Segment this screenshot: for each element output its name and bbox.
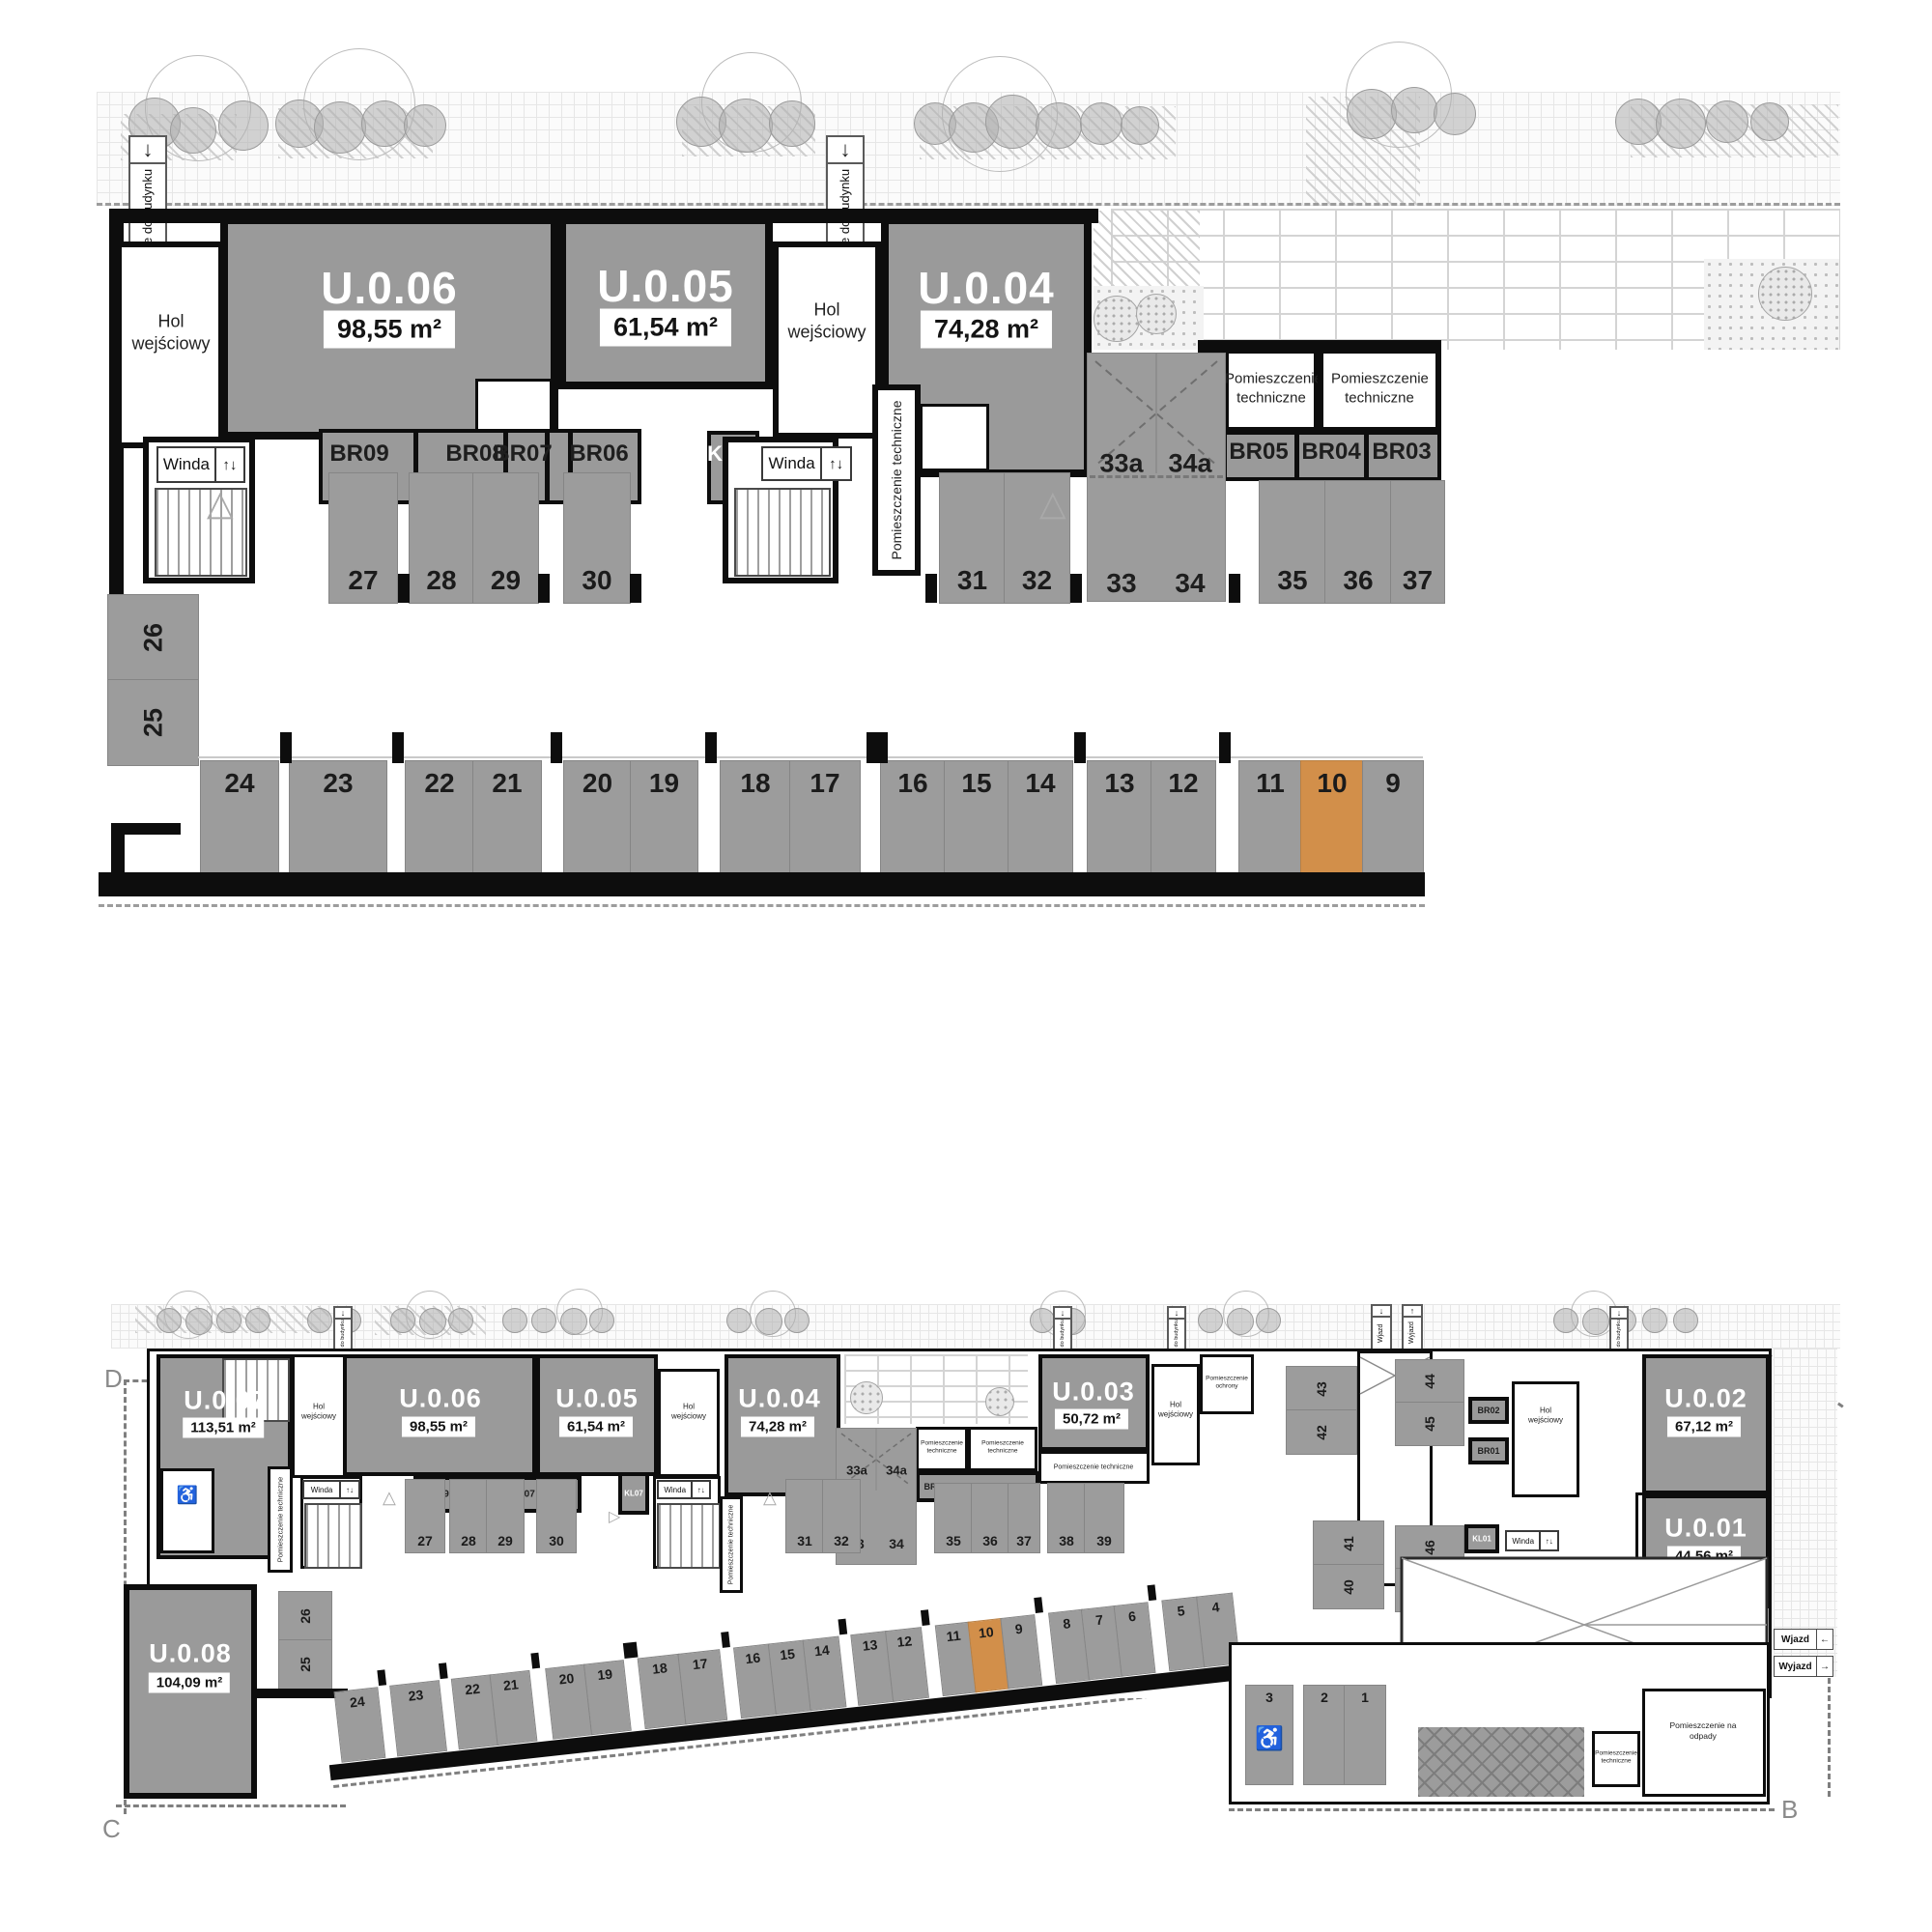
- parking-space-35[interactable]: 35: [1260, 481, 1325, 603]
- tech-room-label: Pomieszczenie techniczne: [1331, 370, 1428, 408]
- parking-number: 34: [889, 1536, 904, 1551]
- entrance-hall-label: Hol wejściowy: [783, 299, 870, 345]
- unit-area-badge: 74,28 m²: [741, 1417, 814, 1437]
- unit-area-badge: 50,72 m²: [1055, 1409, 1128, 1430]
- ramp-triangle-icon: ▷: [609, 1507, 620, 1526]
- shrub-icon: [1136, 294, 1177, 334]
- entrance-hall-label: Hol wejściowy: [665, 1403, 713, 1423]
- parking-space-30[interactable]: 30: [537, 1480, 576, 1552]
- parking-space-20[interactable]: 20: [564, 761, 631, 875]
- outer-wall: [111, 823, 181, 835]
- tree-icon: [726, 1308, 752, 1333]
- parking-space-6[interactable]: 6: [1115, 1603, 1155, 1675]
- parking-space-18[interactable]: 18: [721, 761, 790, 875]
- parking-space-39[interactable]: 39: [1085, 1484, 1123, 1552]
- unit-label: U.0.03: [1052, 1378, 1135, 1407]
- wall-stub: [1034, 1597, 1043, 1613]
- tree-icon: [156, 1308, 182, 1333]
- tree-icon: [1434, 93, 1476, 135]
- storage-room-br03: BR03: [1372, 439, 1431, 466]
- down-arrow-icon: ↓: [1373, 1306, 1390, 1318]
- parking-space-17[interactable]: 17: [790, 761, 860, 875]
- parking-space-16[interactable]: 16: [881, 761, 945, 875]
- wheelchair-icon: ♿: [177, 1486, 198, 1506]
- security-room-label: Pomieszczenie ochrony: [1202, 1376, 1252, 1392]
- parking-space-23[interactable]: 23: [390, 1681, 446, 1755]
- parking-space-21[interactable]: 21: [491, 1671, 537, 1745]
- parking-number: 33: [1106, 568, 1136, 599]
- entrance-hall-room: [1512, 1381, 1579, 1497]
- tree-icon: [1030, 1308, 1055, 1333]
- entrance-hall-label: Hol wejściowy: [128, 311, 214, 356]
- tree-icon: [1080, 102, 1122, 145]
- parking-space-25[interactable]: 25: [108, 680, 198, 765]
- parking-number: 34: [1175, 568, 1205, 599]
- wall-stub: [280, 732, 292, 763]
- tree-icon: [589, 1308, 614, 1333]
- gate-sign-wjazd: ↓Wjazd: [1371, 1304, 1392, 1350]
- tree-icon: [1227, 1308, 1254, 1335]
- tree-icon: [1347, 89, 1397, 139]
- wall-stub: [921, 1609, 930, 1626]
- parking-space-19[interactable]: 19: [631, 761, 697, 875]
- elevator-box: Winda↑↓: [657, 1480, 711, 1499]
- up-arrow-icon: ↑: [1404, 1306, 1421, 1318]
- parking-space-27[interactable]: 27: [329, 473, 397, 603]
- parking-space-17[interactable]: 17: [678, 1650, 726, 1723]
- ramp-triangle-icon: △: [207, 483, 234, 524]
- unit-area-badge: 67,12 m²: [1667, 1417, 1741, 1437]
- unit-area-badge: 74,28 m²: [921, 311, 1052, 349]
- parking-space-23[interactable]: 23: [290, 761, 386, 875]
- tree-icon: [314, 101, 366, 154]
- unit-label: U.0.04: [918, 262, 1055, 314]
- down-arrow-icon: ↓: [335, 1308, 351, 1320]
- parking-space-36[interactable]: 36: [1325, 481, 1391, 603]
- tech-room-label: Pomieszczenie techniczne: [276, 1477, 285, 1562]
- wall-stub: [530, 1653, 540, 1669]
- stairs: [657, 1503, 721, 1569]
- tree-icon: [307, 1308, 332, 1333]
- elevator-box: Winda↑↓: [302, 1480, 360, 1499]
- parking-space-43[interactable]: 43: [1287, 1367, 1356, 1410]
- tree-icon: [1582, 1308, 1609, 1335]
- building-entrance-sign: ↓Wejście do budynku: [1167, 1306, 1186, 1352]
- elevator-arrows-icon: ↑↓: [214, 448, 243, 481]
- parking-space-27[interactable]: 27: [406, 1480, 444, 1552]
- bike-racks: [1418, 1727, 1584, 1797]
- tree-icon: [1750, 102, 1789, 141]
- elevator-arrows-icon: ↑↓: [820, 448, 850, 479]
- storage-divider: [1364, 433, 1369, 479]
- tree-icon: [361, 100, 408, 147]
- tree-icon: [1121, 106, 1159, 145]
- unit-label: U.0.08: [149, 1639, 232, 1669]
- storage-room-label: BR02: [1477, 1406, 1499, 1415]
- site-boundary-dashed: [116, 1804, 346, 1807]
- parking-space-2[interactable]: 2: [1304, 1686, 1345, 1784]
- shrub-icon: [985, 1387, 1014, 1416]
- parking-space-36[interactable]: 36: [972, 1484, 1009, 1552]
- parking-space-28[interactable]: 28: [410, 473, 473, 603]
- shrub-icon: [850, 1381, 883, 1414]
- parking-space-10-highlighted[interactable]: 10: [1301, 761, 1363, 875]
- unit-label: U.0.02: [1664, 1384, 1747, 1414]
- parking-space-14[interactable]: 14: [1009, 761, 1072, 875]
- parking-space-29[interactable]: 29: [487, 1480, 524, 1552]
- aisle-edge-line: [198, 756, 1423, 758]
- parking-space-12[interactable]: 12: [886, 1628, 928, 1701]
- wall-stub: [1229, 574, 1240, 603]
- parking-space-13[interactable]: 13: [1088, 761, 1151, 875]
- storage-room-label: BR01: [1477, 1446, 1499, 1456]
- tree-icon: [531, 1308, 556, 1333]
- unit-area-badge: 104,09 m²: [149, 1673, 230, 1693]
- entrance-hall-label: Hol wejściowy: [298, 1403, 340, 1423]
- tree-icon: [1615, 99, 1662, 145]
- unit-area-badge: 98,55 m²: [402, 1417, 475, 1437]
- unit-label: U.0.04: [738, 1384, 821, 1414]
- storage-room-br04: BR04: [1301, 439, 1360, 466]
- down-arrow-icon: ↓: [1611, 1308, 1627, 1320]
- down-arrow-icon: ↓: [828, 137, 863, 164]
- floor-plan-page: ↓ Wejście do budynku ↓ Wejście do budynk…: [0, 0, 1932, 1932]
- elevator-box: Winda↑↓: [1505, 1530, 1559, 1551]
- tree-icon: [218, 100, 269, 151]
- storage-room-br05: BR05: [1229, 439, 1288, 466]
- wall-stub: [1070, 574, 1082, 603]
- tree-icon: [245, 1308, 270, 1333]
- tech-room-label: Pomieszczenie techniczne: [918, 1440, 966, 1457]
- waste-room: [1642, 1689, 1766, 1797]
- wall-stub: [630, 574, 641, 603]
- tech-room-label: Pomieszczenie techniczne: [974, 1440, 1032, 1457]
- corner-label-d: D: [104, 1364, 123, 1394]
- wall-stub: [838, 1619, 847, 1635]
- parking-space-24[interactable]: 24: [335, 1688, 385, 1761]
- garden-hatch: [1094, 211, 1200, 292]
- tree-icon: [719, 99, 773, 153]
- sidewalk-paving: [1774, 1349, 1837, 1677]
- unit-label: U.0.06: [399, 1384, 482, 1414]
- wheelchair-icon: ♿: [1255, 1725, 1284, 1753]
- down-arrow-icon: ↓: [1055, 1308, 1070, 1320]
- elevator-arrows-icon: ↑↓: [339, 1482, 358, 1497]
- parking-space-9[interactable]: 9: [1363, 761, 1423, 875]
- tree-icon: [448, 1308, 473, 1333]
- parking-space-41[interactable]: 41: [1314, 1521, 1383, 1565]
- unit-area-badge: 98,55 m²: [324, 311, 455, 349]
- unit-label: U.0.07: [184, 1386, 267, 1416]
- ramp-triangle-icon: △: [1039, 483, 1066, 524]
- wall-stub: [377, 1669, 386, 1686]
- corner-label-b: B: [1781, 1795, 1798, 1825]
- wall-stub: [721, 1632, 730, 1648]
- storage-room-br07: BR07: [493, 440, 552, 468]
- unit-bathroom: [920, 404, 989, 471]
- wall-stub: [623, 1642, 639, 1659]
- tree-icon: [170, 107, 216, 154]
- stairwell-label: KL07: [624, 1490, 643, 1498]
- wall-stub: [439, 1662, 448, 1679]
- wall-stub: [705, 732, 717, 763]
- tree-icon: [502, 1308, 527, 1333]
- parking-space-31[interactable]: 31: [940, 473, 1005, 603]
- building-entrance-sign: ↓Wejście do budynku: [1609, 1306, 1629, 1352]
- elevator-arrows-icon: ↑↓: [1539, 1532, 1557, 1549]
- parking-space-21[interactable]: 21: [473, 761, 541, 875]
- tree-icon: [755, 1308, 782, 1335]
- wall-stub: [1148, 1584, 1157, 1601]
- wall-stub: [551, 732, 562, 763]
- tree-icon: [1656, 99, 1706, 149]
- tree-icon: [1673, 1308, 1698, 1333]
- overview-plan: D A C B ↓Wejście do budynku ↓Wejście do …: [0, 966, 1932, 1932]
- tree-icon: [1198, 1308, 1223, 1333]
- tree-icon: [769, 100, 815, 147]
- parking-space-44[interactable]: 44: [1396, 1360, 1463, 1403]
- parking-space-26[interactable]: 26: [279, 1592, 331, 1640]
- site-boundary-dashed: [99, 904, 1425, 907]
- tech-room-label: Pomieszczenie techniczne: [1594, 1750, 1638, 1767]
- right-arrow-icon: →: [1816, 1657, 1833, 1676]
- parking-space-40[interactable]: 40: [1314, 1565, 1383, 1608]
- parking-space-31[interactable]: 31: [786, 1480, 823, 1552]
- unit-label: U.0.06: [321, 262, 458, 314]
- gate-sign-wjazd: Wjazd←: [1774, 1629, 1833, 1650]
- unit-label: U.0.05: [597, 260, 734, 312]
- parking-space-45[interactable]: 45: [1396, 1403, 1463, 1445]
- parking-space-37[interactable]: 37: [1391, 481, 1444, 603]
- left-arrow-icon: ←: [1816, 1630, 1833, 1649]
- site-boundary-dashed: [97, 203, 1840, 206]
- building-entrance-sign: ↓Wejście do budynku: [1053, 1306, 1072, 1352]
- tree-icon: [1706, 100, 1748, 143]
- elevator-box: Winda ↑↓: [156, 446, 245, 483]
- tree-icon: [216, 1308, 241, 1333]
- detail-plan: ↓ Wejście do budynku ↓ Wejście do budynk…: [0, 0, 1932, 966]
- unit-area-badge: 61,54 m²: [600, 309, 731, 347]
- entrance-hall-room: [658, 1369, 720, 1477]
- tech-room-label: Pomieszczenie techniczne: [889, 401, 904, 560]
- outer-wall-bottom: [99, 872, 1425, 896]
- unit-bathroom: [475, 379, 553, 437]
- tree-icon: [390, 1308, 415, 1333]
- ramp-triangle-icon: △: [383, 1488, 396, 1508]
- parking-space-11[interactable]: 11: [1239, 761, 1301, 875]
- wall-stub: [392, 732, 404, 763]
- wall-stub: [925, 574, 937, 603]
- wall-stub: [398, 574, 410, 603]
- wall-stub: [1219, 732, 1231, 763]
- gate-sign-wyjazd: ↑Wyjazd: [1402, 1304, 1423, 1350]
- wall-stub: [867, 732, 888, 763]
- parking-space-22[interactable]: 22: [406, 761, 473, 875]
- parking-space-26[interactable]: 26: [108, 595, 198, 680]
- waste-room-label: Pomieszczenie na odpady: [1664, 1720, 1742, 1742]
- parking-space-32[interactable]: 32: [823, 1480, 860, 1552]
- tree-icon: [185, 1308, 213, 1335]
- stairs: [304, 1503, 362, 1569]
- shrub-icon: [1094, 296, 1140, 342]
- storage-room-br09: BR09: [329, 440, 388, 468]
- entrance-hall-label: Hol wejściowy: [1156, 1401, 1195, 1421]
- parking-space-15[interactable]: 15: [945, 761, 1009, 875]
- site-boundary-dashed: [1229, 1808, 1775, 1811]
- wall-stub: [538, 574, 550, 603]
- tech-room-label: Pomieszczenie techniczne: [1225, 370, 1318, 408]
- tandem-space-33a: 33a: [846, 1463, 867, 1478]
- parking-space-30[interactable]: 30: [564, 473, 630, 603]
- tree-icon: [1036, 102, 1082, 149]
- building-entrance-sign: ↓Wejście do budynku: [333, 1306, 353, 1352]
- entrance-hall-label: Hol wejściowy: [1521, 1406, 1570, 1427]
- down-arrow-icon: ↓: [1169, 1308, 1184, 1320]
- corner-label-c: C: [102, 1814, 121, 1844]
- stairwell-label: KL01: [1472, 1535, 1492, 1544]
- parking-space-14[interactable]: 14: [804, 1637, 846, 1711]
- unit-room-u006[interactable]: [343, 1354, 536, 1476]
- tech-room-label: Pomieszczenie techniczne: [728, 1505, 735, 1585]
- tree-icon: [404, 104, 446, 147]
- elevator-box: Winda ↑↓: [761, 446, 852, 481]
- unit-label: U.0.05: [555, 1384, 639, 1414]
- tree-icon: [1642, 1308, 1667, 1333]
- stairs: [734, 488, 831, 577]
- parking-space-12[interactable]: 12: [1151, 761, 1215, 875]
- wc-room: [160, 1468, 214, 1553]
- tree-icon: [1553, 1308, 1578, 1333]
- parking-space-38[interactable]: 38: [1048, 1484, 1085, 1552]
- tree-icon: [419, 1308, 446, 1335]
- tandem-space-33a: 33a: [1099, 449, 1143, 479]
- unit-label: U.0.01: [1664, 1514, 1747, 1544]
- parking-space-29[interactable]: 29: [473, 473, 538, 603]
- unit-room-u005[interactable]: [536, 1354, 658, 1476]
- parking-space-35[interactable]: 35: [935, 1484, 972, 1552]
- unit-area-badge: 113,51 m²: [183, 1418, 264, 1438]
- parking-space-1[interactable]: 1: [1345, 1686, 1385, 1784]
- tree-icon: [1391, 87, 1437, 133]
- parking-space-37[interactable]: 37: [1009, 1484, 1039, 1552]
- ramp-triangle-icon: △: [763, 1488, 777, 1508]
- tree-icon: [784, 1308, 810, 1333]
- tandem-space-34a: 34a: [1168, 449, 1211, 479]
- wall-stub: [1074, 732, 1086, 763]
- tree-icon: [1256, 1308, 1281, 1333]
- down-arrow-icon: ↓: [130, 137, 165, 164]
- gate-sign-wyjazd: Wyjazd→: [1774, 1656, 1833, 1677]
- tree-icon: [560, 1308, 587, 1335]
- parking-space-9[interactable]: 9: [1001, 1615, 1041, 1688]
- parking-space-42[interactable]: 42: [1287, 1410, 1356, 1454]
- tandem-space-34a: 34a: [886, 1463, 907, 1478]
- elevator-arrows-icon: ↑↓: [691, 1482, 709, 1497]
- tree-icon: [985, 95, 1039, 149]
- parking-space-28[interactable]: 28: [450, 1480, 487, 1552]
- tech-room-label: Pomieszczenie techniczne: [1040, 1463, 1147, 1471]
- shrub-icon: [1758, 267, 1812, 321]
- parking-space-19[interactable]: 19: [584, 1661, 631, 1734]
- parking-space-24[interactable]: 24: [201, 761, 278, 875]
- unit-area-badge: 61,54 m²: [559, 1417, 633, 1437]
- storage-room-br06: BR06: [569, 440, 628, 468]
- storage-divider: [1294, 433, 1299, 479]
